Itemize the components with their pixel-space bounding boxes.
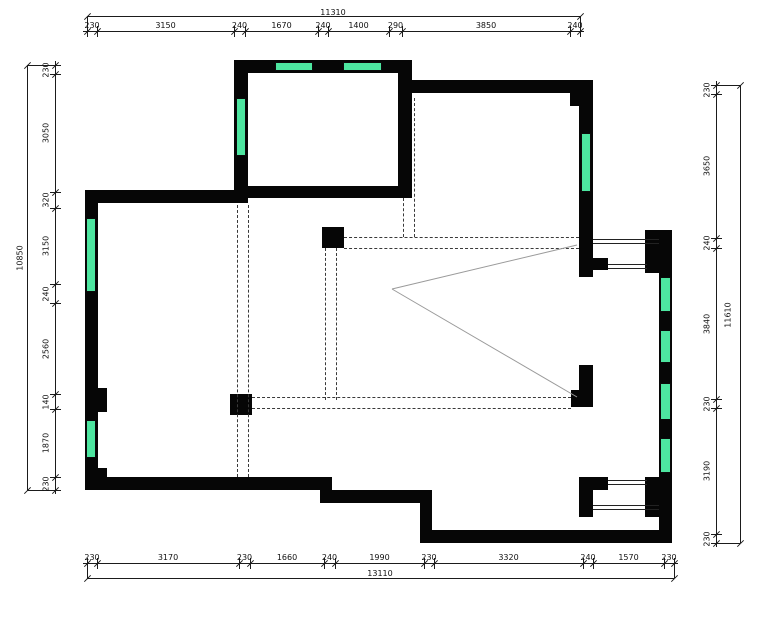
dim-label: 240 bbox=[567, 21, 582, 30]
dim-label: 320 bbox=[42, 192, 51, 207]
dim-label: 3150 bbox=[155, 21, 175, 30]
wall bbox=[98, 388, 107, 412]
dim-line-overall bbox=[87, 16, 580, 17]
dim-tick bbox=[737, 540, 744, 547]
dim-label: 230 bbox=[84, 21, 99, 30]
dim-label: 240 bbox=[322, 553, 337, 562]
dim-label: 1870 bbox=[42, 433, 51, 453]
dim-label: 230 bbox=[42, 476, 51, 491]
wall bbox=[248, 186, 412, 198]
beam-dashed-line bbox=[344, 237, 579, 238]
wall bbox=[571, 390, 593, 407]
dim-line-overall bbox=[27, 65, 28, 490]
dim-extension-stub bbox=[711, 248, 722, 249]
dim-label: 240 bbox=[580, 553, 595, 562]
dim-extension-stub bbox=[50, 394, 61, 395]
dim-label: 230 bbox=[237, 553, 252, 562]
window bbox=[581, 133, 591, 192]
beam-dashed-line bbox=[325, 248, 326, 400]
floor-plan-canvas: 11310 13110 10850 11610 2303150240167024… bbox=[0, 0, 759, 621]
beam-dashed-line bbox=[344, 248, 579, 249]
wall bbox=[593, 258, 608, 270]
beam-dashed-line bbox=[403, 198, 404, 237]
dim-extension-stub bbox=[50, 490, 61, 491]
window bbox=[236, 98, 246, 156]
opening-direction-lines bbox=[0, 0, 759, 621]
dim-label: 230 bbox=[703, 396, 712, 411]
dim-label: 3150 bbox=[42, 236, 51, 256]
wall bbox=[398, 80, 593, 93]
window bbox=[660, 438, 671, 473]
window bbox=[275, 62, 313, 71]
dim-extension-stub bbox=[50, 192, 61, 193]
dim-line-segments bbox=[716, 81, 717, 547]
dim-label: 230 bbox=[703, 82, 712, 97]
opening-line bbox=[392, 289, 577, 397]
dim-tick bbox=[671, 575, 678, 582]
bay-window-lines bbox=[608, 264, 647, 269]
beam-dashed-line bbox=[237, 205, 238, 477]
window bbox=[86, 420, 96, 458]
dim-extension-stub bbox=[711, 408, 722, 409]
dim-line-segments bbox=[55, 61, 56, 494]
dim-label: 230 bbox=[703, 531, 712, 546]
wall bbox=[420, 530, 672, 543]
dim-extension-stub bbox=[711, 543, 722, 544]
dim-line-segments bbox=[83, 31, 584, 32]
dim-label: 230 bbox=[421, 553, 436, 562]
dim-label: 1660 bbox=[277, 553, 297, 562]
dim-extension-stub bbox=[50, 74, 61, 75]
wall bbox=[593, 477, 608, 490]
dim-overall-right: 11610 bbox=[724, 302, 733, 327]
dim-label: 3840 bbox=[703, 313, 712, 333]
dim-extension-stub bbox=[711, 85, 722, 86]
dim-extension-stub bbox=[711, 534, 722, 535]
dim-extension-stub bbox=[711, 238, 722, 239]
bay-window-lines bbox=[608, 480, 647, 485]
wall bbox=[85, 190, 248, 203]
dim-label: 140 bbox=[42, 394, 51, 409]
wall bbox=[579, 477, 593, 517]
bay-window-lines bbox=[593, 239, 659, 244]
dim-label: 1670 bbox=[271, 21, 291, 30]
dim-label: 240 bbox=[703, 235, 712, 250]
wall bbox=[645, 477, 672, 517]
dim-extension-stub bbox=[50, 303, 61, 304]
dim-extension-stub bbox=[711, 94, 722, 95]
dim-line-overall bbox=[740, 85, 741, 543]
wall bbox=[579, 238, 593, 277]
bay-window-lines bbox=[593, 505, 659, 510]
window bbox=[660, 277, 671, 312]
dim-label: 3190 bbox=[703, 461, 712, 481]
dim-label: 3320 bbox=[498, 553, 518, 562]
dim-label: 230 bbox=[661, 553, 676, 562]
dim-label: 1570 bbox=[618, 553, 638, 562]
dim-overall-bottom: 13110 bbox=[367, 569, 392, 578]
structural-column bbox=[322, 227, 344, 248]
dim-extension-stub bbox=[711, 399, 722, 400]
wall bbox=[570, 93, 579, 106]
wall bbox=[320, 490, 432, 503]
dim-extension-stub bbox=[50, 284, 61, 285]
dim-label: 1990 bbox=[369, 553, 389, 562]
dim-label: 3650 bbox=[703, 156, 712, 176]
dim-line-overall bbox=[87, 578, 674, 579]
wall bbox=[85, 477, 332, 490]
dim-extension-stub bbox=[50, 65, 61, 66]
dim-extension-stub bbox=[50, 208, 61, 209]
dim-extension-stub bbox=[50, 477, 61, 478]
window bbox=[86, 218, 96, 292]
dim-extension-stub bbox=[50, 409, 61, 410]
beam-dashed-line bbox=[414, 98, 415, 237]
opening-line bbox=[392, 245, 577, 289]
window bbox=[660, 330, 671, 363]
beam-dashed-line bbox=[336, 248, 337, 400]
dim-label: 3050 bbox=[42, 123, 51, 143]
dim-label: 3170 bbox=[158, 553, 178, 562]
beam-dashed-line bbox=[252, 408, 571, 409]
dim-label: 240 bbox=[232, 21, 247, 30]
dim-label: 3850 bbox=[476, 21, 496, 30]
dim-label: 2560 bbox=[42, 338, 51, 358]
dim-label: 240 bbox=[42, 286, 51, 301]
window bbox=[343, 62, 382, 71]
dim-label: 230 bbox=[84, 553, 99, 562]
dim-label: 240 bbox=[315, 21, 330, 30]
beam-dashed-line bbox=[248, 205, 249, 477]
dim-label: 1400 bbox=[348, 21, 368, 30]
dim-label: 290 bbox=[388, 21, 403, 30]
dim-line-segments bbox=[83, 563, 678, 564]
beam-dashed-line bbox=[252, 397, 571, 398]
dim-overall-left: 10850 bbox=[16, 245, 25, 270]
window bbox=[660, 383, 671, 420]
dim-label: 230 bbox=[42, 62, 51, 77]
wall bbox=[234, 60, 412, 73]
wall bbox=[645, 230, 672, 273]
